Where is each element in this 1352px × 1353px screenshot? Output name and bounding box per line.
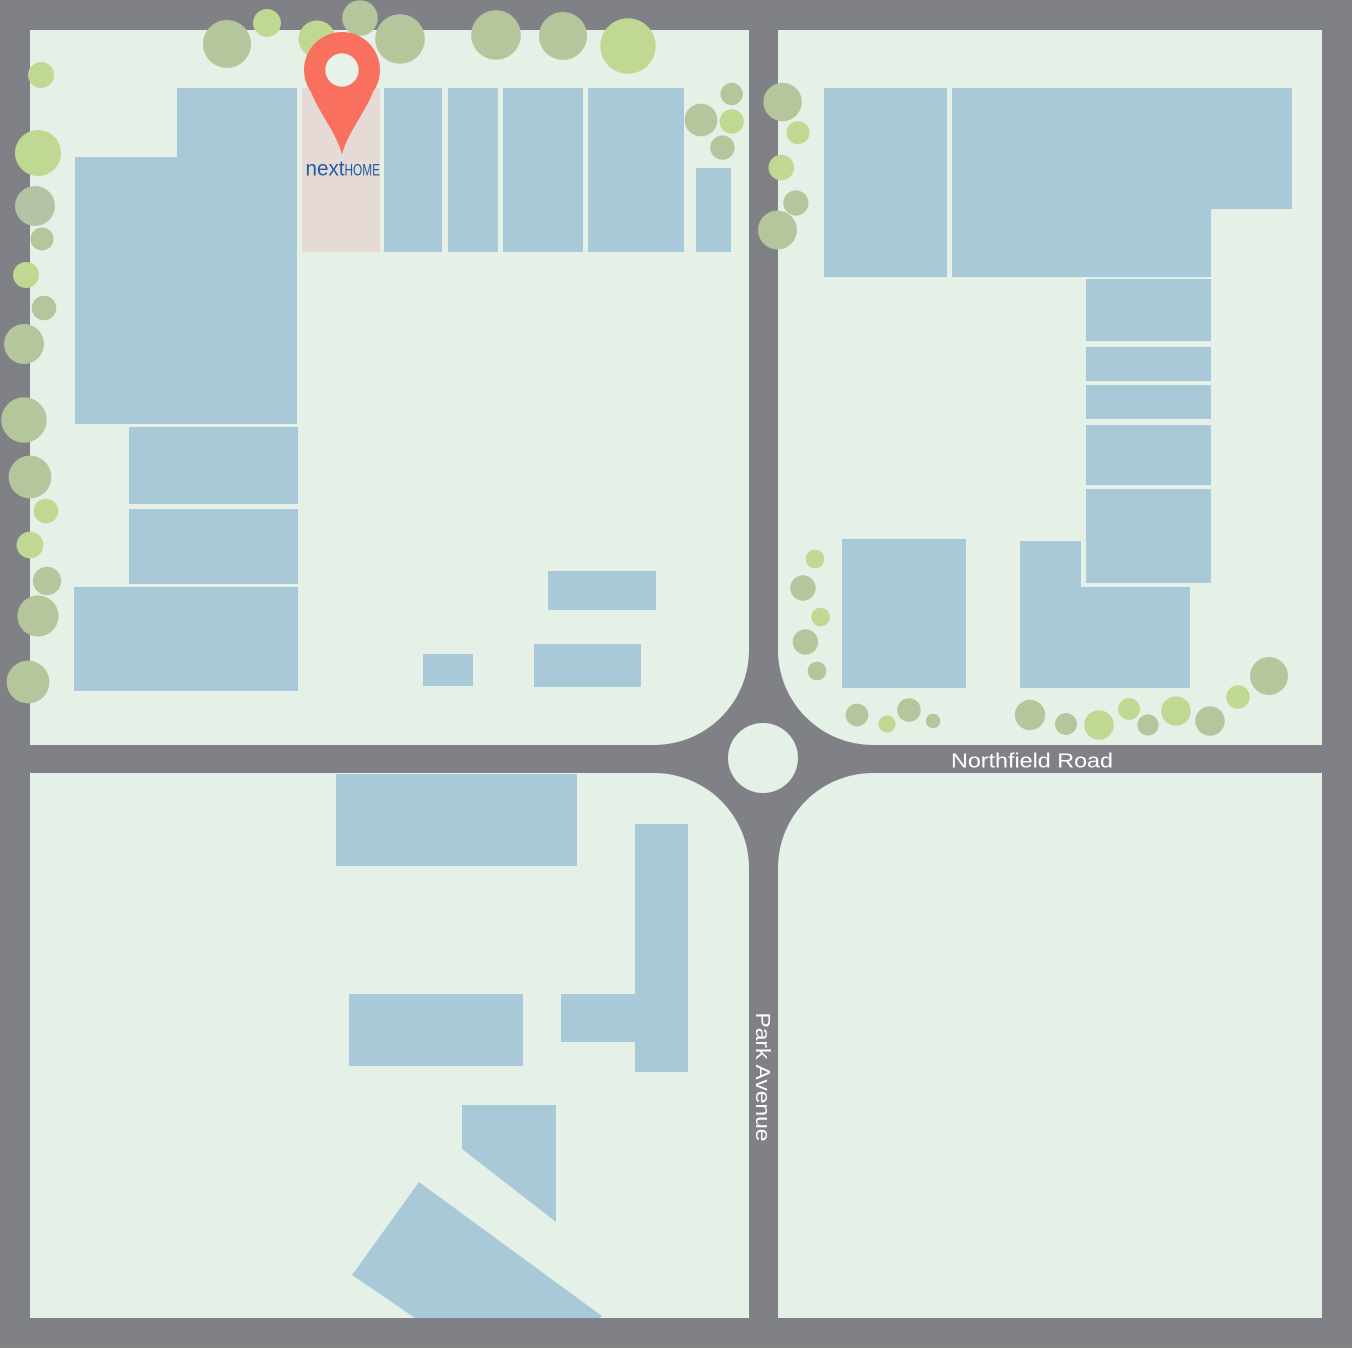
svg-text:Northfield Road: Northfield Road (951, 750, 1113, 773)
svg-text:nextHOME: nextHOME (306, 158, 381, 181)
svg-text:Park Avenue: Park Avenue (751, 1013, 774, 1142)
